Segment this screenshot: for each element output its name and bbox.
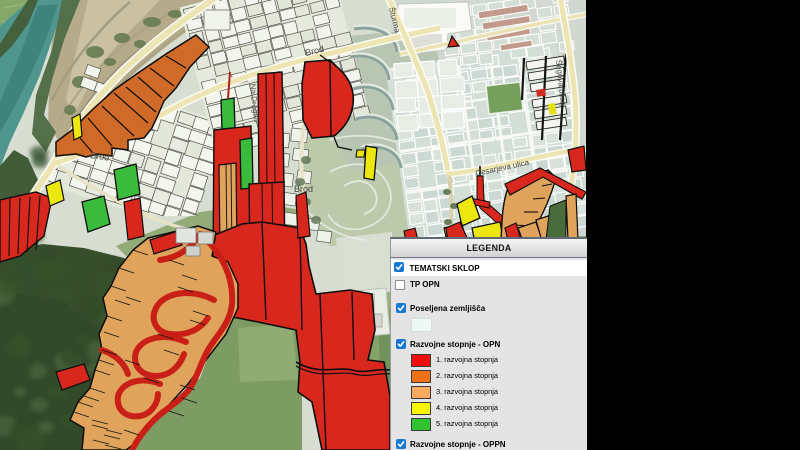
svg-text:Brod: Brod xyxy=(294,184,313,194)
